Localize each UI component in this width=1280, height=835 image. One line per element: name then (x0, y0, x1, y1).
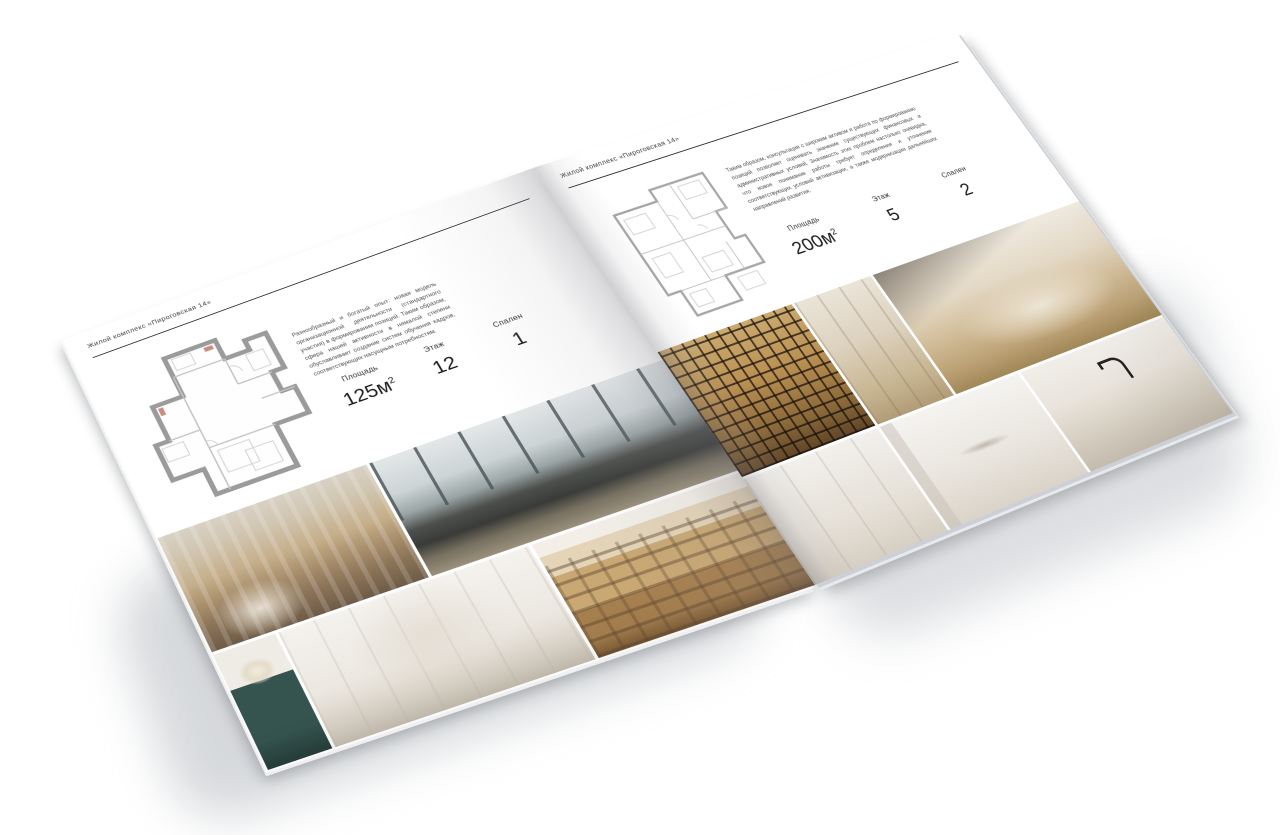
stat-value: 5 (869, 200, 919, 231)
stat-value-number: 1 (508, 328, 530, 349)
stat-area: Площадь 200м2 (767, 209, 856, 264)
stat-bedrooms: Спален 2 (928, 161, 996, 207)
stat-floor: Этаж 5 (860, 187, 920, 231)
stat-value-number: 12 (429, 353, 462, 378)
stat-bedrooms: Спален 1 (477, 307, 555, 359)
brochure-mockup-scene: Жилой комплекс «Пироговская 14» Разнообр… (0, 0, 1280, 835)
stat-value-number: 2 (956, 180, 977, 200)
stat-value-number: 5 (883, 205, 904, 225)
faucet-icon (1098, 354, 1134, 384)
